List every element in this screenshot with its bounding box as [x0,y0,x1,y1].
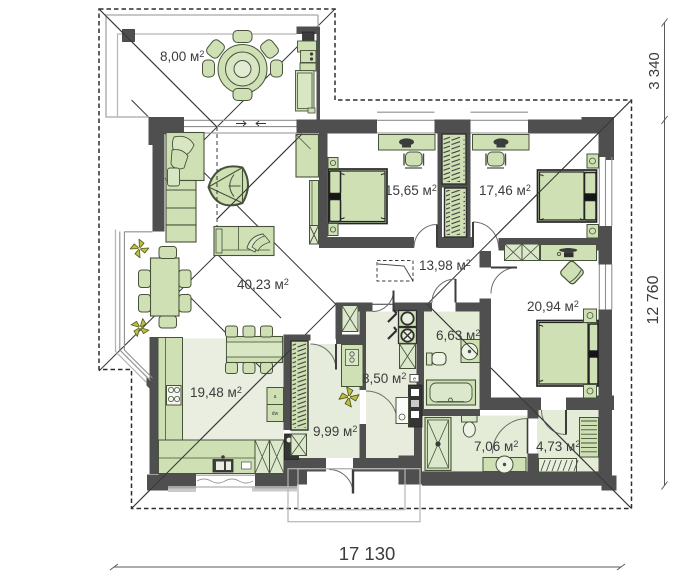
svg-text:e: e [413,377,416,383]
svg-text:19,48 м2: 19,48 м2 [190,385,242,400]
svg-text:15,65 м2: 15,65 м2 [385,183,437,198]
svg-text:7,06 м2: 7,06 м2 [474,439,518,454]
svg-text:8,00 м2: 8,00 м2 [160,49,204,64]
svg-text:12 760: 12 760 [645,275,662,324]
svg-text:8,50 м2: 8,50 м2 [362,371,406,386]
svg-text:20,94 м2: 20,94 м2 [527,299,579,314]
svg-text:6,63 м2: 6,63 м2 [436,328,480,343]
svg-text:a: a [274,394,277,400]
svg-text:3 340: 3 340 [646,52,663,90]
svg-text:dw: dw [272,411,279,417]
svg-text:9,99 м2: 9,99 м2 [313,424,357,439]
svg-text:13,98 м2: 13,98 м2 [419,258,471,273]
svg-text:4,73 м2: 4,73 м2 [536,439,580,454]
svg-text:17 130: 17 130 [339,543,396,564]
svg-text:17,46 м2: 17,46 м2 [479,183,531,198]
svg-text:40,23 м2: 40,23 м2 [237,277,289,292]
